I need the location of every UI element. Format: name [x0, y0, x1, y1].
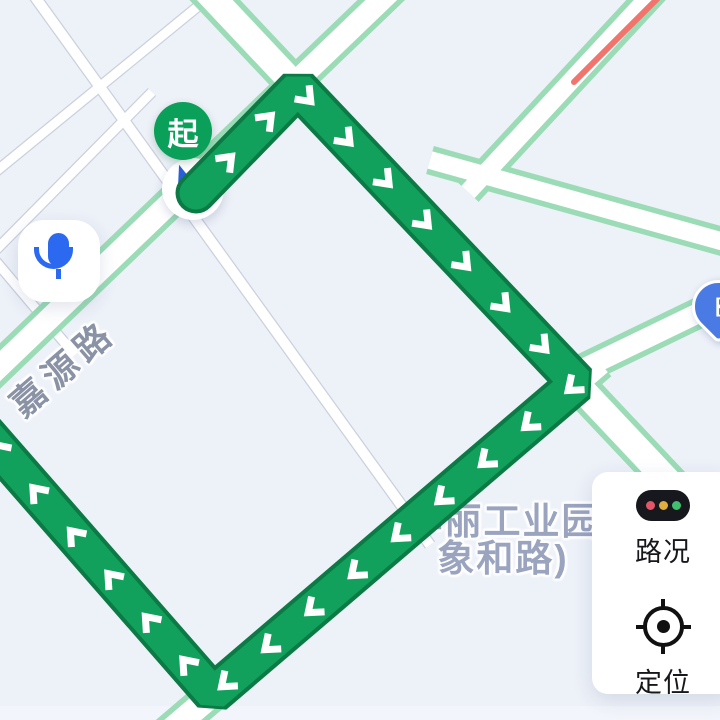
- traffic-toggle-button[interactable]: 路况: [592, 472, 720, 583]
- crosshair-icon: [643, 606, 684, 647]
- map-canvas[interactable]: 嘉源路 华丽工业园 象和路) 起 [: [0, 0, 720, 720]
- locate-button[interactable]: 定位: [592, 583, 720, 714]
- locate-button-label: 定位: [635, 661, 691, 700]
- traffic-light-icon: [636, 490, 690, 521]
- map-tools-panel: 路况 定位: [592, 472, 720, 694]
- voice-mic-button[interactable]: [18, 220, 100, 302]
- traffic-toggle-label: 路况: [635, 530, 691, 569]
